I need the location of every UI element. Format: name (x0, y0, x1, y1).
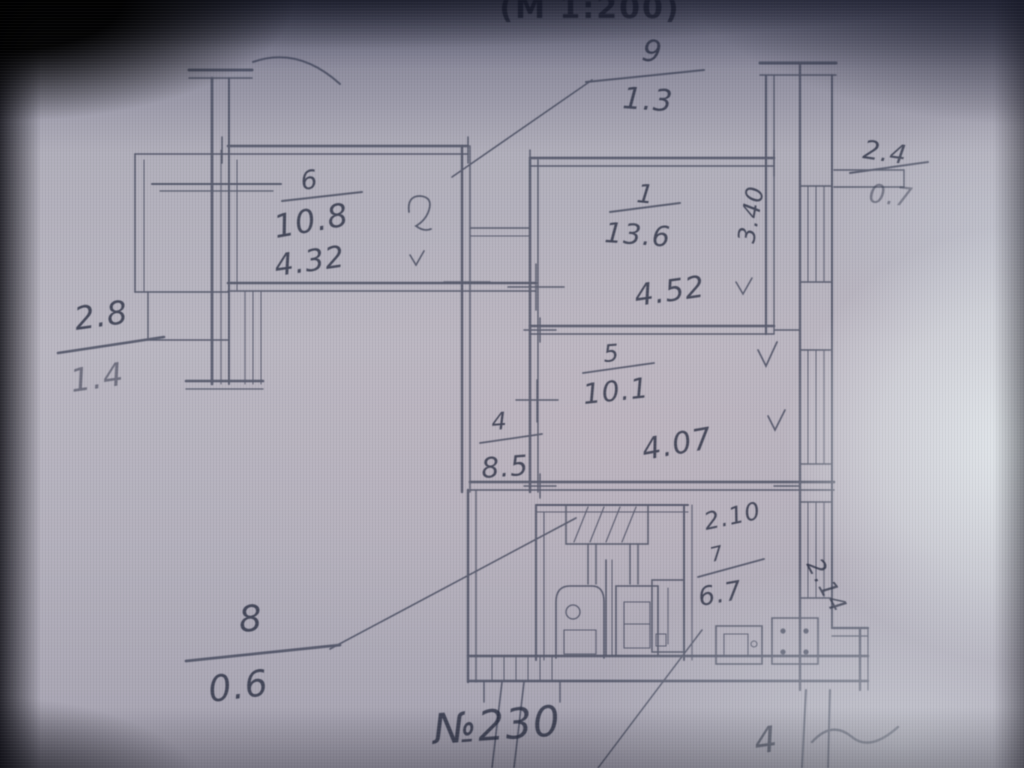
plan-drawing: (М 1:200) 9 1.3 6 10.8 4.32 1 13.6 4.52 … (0, 0, 1024, 768)
room7-number: 7 (707, 540, 726, 567)
room9-number: 9 (640, 33, 665, 70)
corner-mark: 4 (752, 719, 781, 763)
floor-plan-photo: (М 1:200) 9 1.3 6 10.8 4.32 1 13.6 4.52 … (0, 0, 1024, 768)
room4-area: 8.5 (480, 449, 530, 485)
room1-number: 1 (635, 179, 656, 211)
room6-area: 10.8 (271, 195, 352, 245)
stove-burner-dots (780, 628, 808, 654)
room1-area: 13.6 (604, 216, 672, 254)
room7-area: 6.7 (696, 576, 745, 613)
balcony-right-width: 2.4 (861, 135, 909, 171)
balcony-left-width: 2.8 (72, 293, 131, 338)
scale-label: (М 1:200) (499, 0, 680, 26)
apartment-number-label: №230 (429, 696, 562, 754)
room5-number: 5 (602, 339, 620, 368)
room8-area: 0.6 (206, 663, 271, 711)
room6-number: 6 (299, 165, 321, 197)
balcony-right-area: 0.7 (867, 179, 914, 213)
room9-area: 1.3 (621, 81, 674, 119)
room8-number: 8 (237, 598, 264, 641)
room6-width-dim: 4.32 (272, 239, 347, 284)
room5-width-dim: 4.07 (639, 421, 715, 468)
room7-top-dim: 2.10 (701, 497, 763, 536)
room1-depth-dim: 3.40 (732, 184, 770, 245)
room1-width-dim: 4.52 (632, 269, 707, 314)
room4-number: 4 (490, 407, 508, 436)
room5-area: 10.1 (581, 371, 650, 411)
balcony-left-area: 1.4 (68, 355, 127, 400)
